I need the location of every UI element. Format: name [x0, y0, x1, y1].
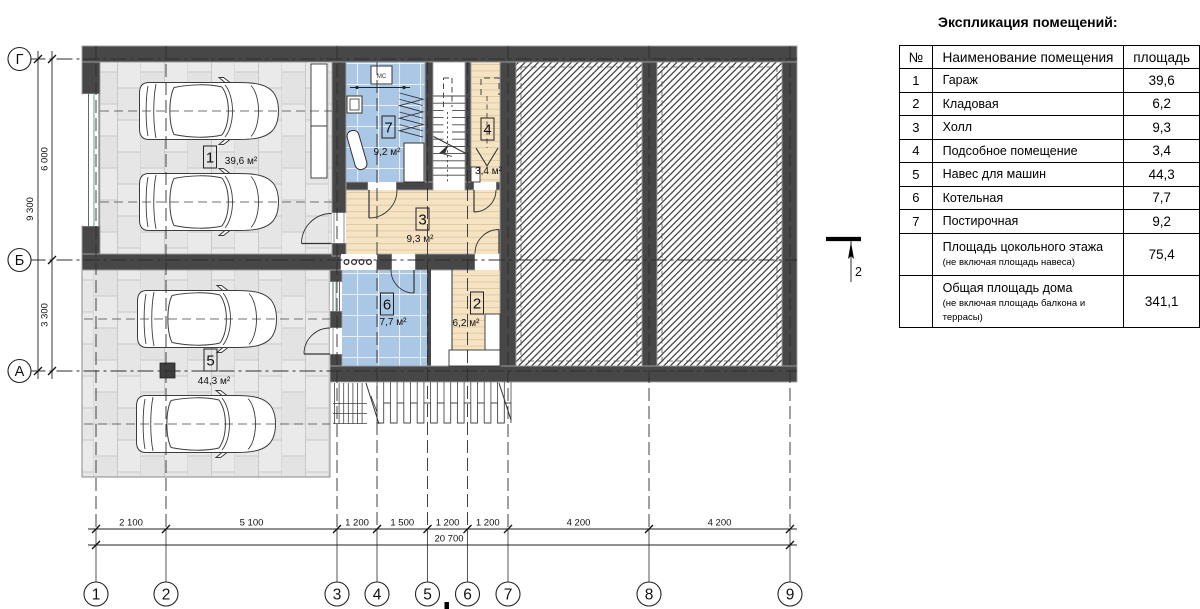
svg-text:4 200: 4 200 — [708, 518, 732, 529]
svg-text:1 200: 1 200 — [345, 518, 369, 529]
svg-text:39,6 м²: 39,6 м² — [225, 156, 258, 167]
svg-text:3,4 м²: 3,4 м² — [475, 166, 503, 177]
svg-text:6,2 м²: 6,2 м² — [453, 318, 481, 329]
svg-text:1 200: 1 200 — [436, 518, 460, 529]
svg-text:1 200: 1 200 — [476, 518, 500, 529]
svg-text:7: 7 — [384, 120, 392, 137]
svg-text:3 300: 3 300 — [40, 303, 51, 327]
svg-text:20 700: 20 700 — [434, 534, 463, 545]
svg-text:44,3 м²: 44,3 м² — [198, 376, 231, 387]
svg-text:А: А — [15, 364, 25, 380]
svg-text:3: 3 — [418, 212, 426, 229]
svg-text:1: 1 — [206, 150, 214, 167]
svg-text:1: 1 — [92, 587, 101, 604]
svg-text:4 200: 4 200 — [567, 518, 591, 529]
svg-text:МС: МС — [377, 74, 387, 80]
svg-text:3: 3 — [333, 587, 342, 604]
svg-text:8: 8 — [645, 587, 654, 604]
svg-text:6: 6 — [463, 587, 472, 604]
svg-text:9,3 м²: 9,3 м² — [407, 234, 435, 245]
svg-text:6 000: 6 000 — [40, 147, 51, 171]
svg-text:2: 2 — [162, 587, 171, 604]
svg-text:9,2 м²: 9,2 м² — [374, 147, 402, 158]
svg-text:Б: Б — [15, 253, 25, 269]
svg-text:5: 5 — [423, 587, 432, 604]
svg-text:9 300: 9 300 — [25, 197, 36, 221]
svg-text:1 500: 1 500 — [390, 518, 414, 529]
svg-text:4: 4 — [373, 587, 382, 604]
svg-text:Г: Г — [16, 52, 24, 68]
svg-text:2: 2 — [855, 265, 862, 279]
svg-text:5: 5 — [206, 353, 214, 370]
svg-text:5 100: 5 100 — [240, 518, 264, 529]
svg-text:2: 2 — [473, 296, 481, 313]
svg-text:2 100: 2 100 — [119, 518, 143, 529]
svg-text:7: 7 — [504, 587, 513, 604]
svg-text:6: 6 — [383, 297, 391, 314]
svg-text:7,7 м²: 7,7 м² — [380, 317, 408, 328]
svg-text:4: 4 — [483, 122, 491, 139]
svg-text:9: 9 — [786, 587, 795, 604]
